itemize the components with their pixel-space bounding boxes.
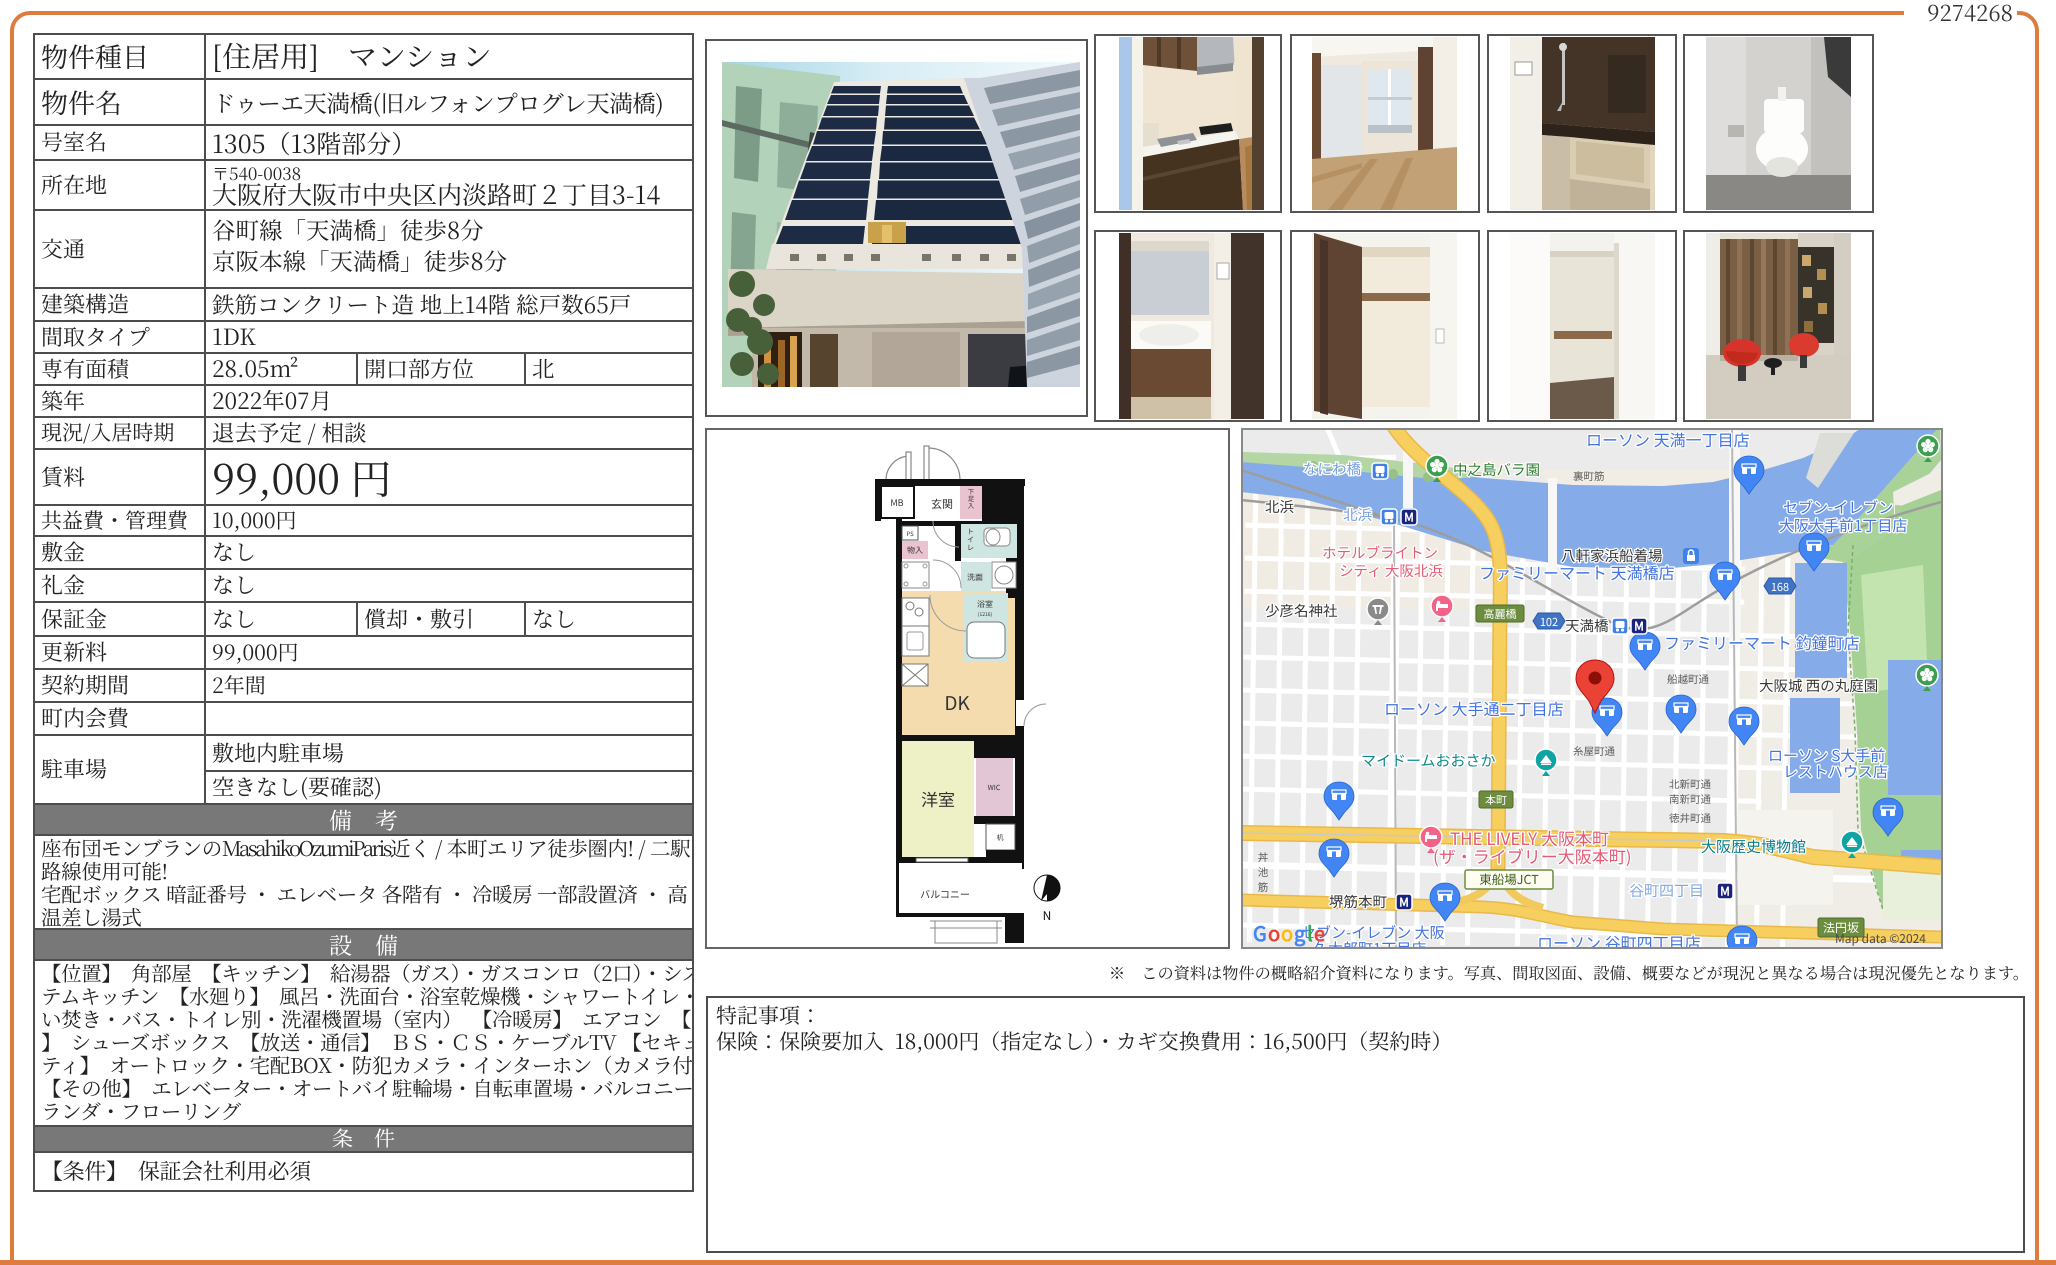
svg-text:浴室: 浴室 (977, 599, 993, 610)
svg-text:なにわ橋: なにわ橋 (1303, 458, 1361, 479)
svg-text:北新町通: 北新町通 (1669, 777, 1711, 792)
svg-text:N: N (1043, 907, 1052, 924)
svg-text:ローソン 大手通二丁目店: ローソン 大手通二丁目店 (1384, 696, 1564, 720)
svg-text:e: e (1314, 918, 1325, 947)
svg-text:堺筋本町: 堺筋本町 (1329, 891, 1387, 912)
svg-text:北浜: 北浜 (1343, 504, 1372, 525)
svg-text:WIC: WIC (988, 783, 1001, 793)
svg-text:168: 168 (1771, 579, 1789, 595)
svg-text:東船場JCT: 東船場JCT (1479, 869, 1539, 888)
svg-text:久太郎町1丁目店: 久太郎町1丁目店 (1313, 938, 1426, 947)
svg-text:玄関: 玄関 (931, 496, 953, 512)
svg-text:大阪歴史博物館: 大阪歴史博物館 (1701, 836, 1806, 857)
svg-text:o: o (1281, 918, 1293, 947)
svg-text:洋室: 洋室 (921, 786, 955, 811)
svg-text:大阪城 西の丸庭園: 大阪城 西の丸庭園 (1759, 675, 1878, 696)
svg-text:少彦名神社: 少彦名神社 (1265, 600, 1338, 621)
svg-text:高麗橋: 高麗橋 (1484, 606, 1517, 622)
svg-text:g: g (1294, 918, 1306, 947)
svg-text:l: l (1307, 918, 1313, 947)
svg-text:(ザ・ライブリー大阪本町): (ザ・ライブリー大阪本町) (1433, 843, 1632, 868)
svg-text:バルコニー: バルコニー (920, 886, 970, 901)
svg-text:ローソン 谷町四丁目店: ローソン 谷町四丁目店 (1537, 930, 1701, 947)
svg-text:ファミリーマート 天満橋店: ファミリーマート 天満橋店 (1479, 560, 1675, 584)
svg-text:MB: MB (890, 496, 903, 509)
svg-text:本町: 本町 (1485, 792, 1507, 808)
svg-text:天満橋: 天満橋 (1565, 615, 1609, 636)
svg-text:机: 机 (997, 833, 1004, 843)
svg-text:102: 102 (1540, 614, 1558, 630)
svg-text:大阪大手前1丁目店: 大阪大手前1丁目店 (1779, 515, 1907, 536)
svg-text:シティ 大阪北浜: シティ 大阪北浜 (1339, 560, 1443, 581)
svg-text:南新町通: 南新町通 (1669, 792, 1711, 807)
svg-text:(1216): (1216) (978, 611, 993, 618)
svg-text:北浜: 北浜 (1265, 496, 1294, 517)
svg-text:Map data ©2024: Map data ©2024 (1835, 930, 1926, 947)
svg-text:糸屋町通: 糸屋町通 (1573, 744, 1615, 759)
svg-text:入: 入 (968, 500, 975, 510)
svg-text:o: o (1268, 918, 1280, 947)
svg-text:PS: PS (906, 529, 914, 538)
svg-text:丼池筋: 丼池筋 (1256, 850, 1271, 895)
svg-text:船越町通: 船越町通 (1667, 672, 1709, 687)
svg-text:ローソン 天満一丁目店: ローソン 天満一丁目店 (1586, 430, 1750, 451)
svg-text:洗面: 洗面 (967, 572, 983, 583)
svg-text:マイドームおおさか: マイドームおおさか (1361, 750, 1496, 771)
svg-text:物入: 物入 (907, 545, 923, 556)
svg-text:DK: DK (944, 689, 970, 716)
svg-text:G: G (1253, 918, 1267, 947)
svg-text:裏町筋: 裏町筋 (1573, 469, 1605, 484)
svg-text:ファミリーマート 釣鐘町店: ファミリーマート 釣鐘町店 (1664, 630, 1860, 654)
svg-text:レ: レ (967, 543, 974, 553)
svg-text:レストハウス店: レストハウス店 (1783, 761, 1888, 782)
svg-text:中之島バラ園: 中之島バラ園 (1453, 459, 1540, 480)
svg-text:谷町四丁目: 谷町四丁目 (1629, 880, 1704, 901)
svg-text:徳井町通: 徳井町通 (1669, 811, 1711, 826)
